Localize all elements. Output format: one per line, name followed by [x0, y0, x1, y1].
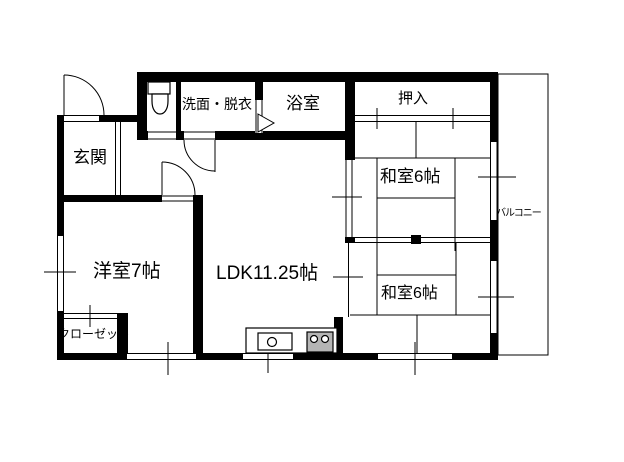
floor-plan: 玄関 洗面・脱衣 浴室 押入 和室6帖 和室6帖 洋室7帖 LDK11.25帖 … — [0, 0, 624, 462]
wall-genkan-top-right — [99, 115, 137, 122]
room-label-washitsu-lower: 和室6帖 — [381, 286, 438, 302]
room-label-balcony: バルコニー — [496, 209, 541, 219]
window-bottom-yoshitsu — [127, 342, 196, 375]
wall-top — [137, 72, 498, 82]
wall-bathroom-right — [345, 72, 355, 160]
bathroom-folding-door-icon — [258, 114, 274, 132]
room-label-ldk: LDK11.25帖 — [216, 264, 318, 283]
entrance-door — [64, 75, 104, 115]
sink-icon — [258, 333, 292, 350]
entrance-door-opening — [64, 115, 99, 122]
washitsu-partition — [350, 229, 490, 251]
window-right-lower — [478, 261, 514, 333]
kitchen-counter — [246, 328, 337, 353]
room-label-washroom: 洗面・脱衣 — [182, 97, 252, 111]
oshiire-sliding-door — [355, 108, 490, 129]
yoshitsu-door — [162, 162, 195, 195]
washroom-door — [184, 140, 215, 172]
sliding-door-ldk-washitsu-lower — [333, 243, 363, 317]
closet-sliding-door — [64, 305, 117, 327]
sliding-door-ldk-washitsu-upper — [332, 160, 362, 237]
wall-toilet-divider — [176, 82, 181, 131]
yoshitsu-door-opening — [162, 195, 193, 202]
wall-yoshitsu-ldk — [193, 195, 203, 353]
washroom-door-opening — [184, 131, 215, 140]
genkan-partition — [116, 122, 121, 196]
room-label-washitsu-upper: 和室6帖 — [380, 168, 440, 185]
toilet-icon — [148, 82, 170, 114]
window-bottom-washitsu — [378, 342, 452, 375]
wall-hall-yoshitsu — [57, 195, 162, 202]
room-label-genkan: 玄関 — [73, 149, 107, 166]
room-label-bathroom: 浴室 — [286, 95, 320, 112]
room-label-oshiire: 押入 — [398, 91, 428, 106]
toilet-door-opening — [148, 131, 176, 140]
room-label-yoshitsu: 洋室7帖 — [93, 262, 161, 281]
stove-icon — [307, 332, 333, 352]
floor-plan-drawing — [0, 0, 624, 462]
wall-toilet-block-left — [137, 72, 147, 140]
window-left — [44, 236, 76, 311]
room-label-closet: クローゼット — [58, 328, 130, 340]
